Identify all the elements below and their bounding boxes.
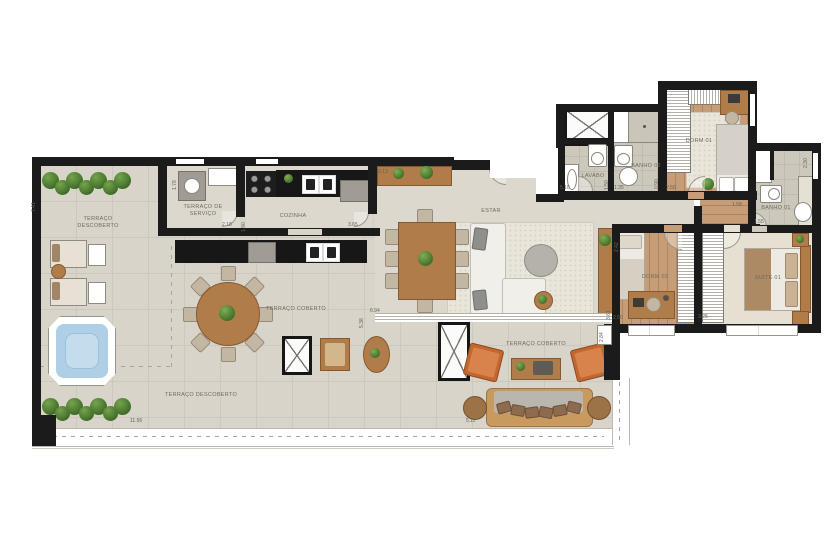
suite-plant: [796, 235, 804, 243]
dim-console-height: 2.42: [614, 242, 620, 252]
pillar-box-1: [282, 336, 312, 375]
dim-lavabo-height: 1.50: [604, 180, 610, 190]
round-side-table: [51, 264, 66, 279]
dim-banho02-width: 1.35: [614, 185, 624, 191]
dim-dorm01-width: 2.50: [666, 185, 676, 191]
banho01-shower-divider: [770, 147, 774, 180]
door-gap-banho01: [752, 226, 767, 232]
banho01-toilet: [760, 185, 782, 203]
dim-estar-height: 5.38: [359, 318, 365, 328]
dim-dorm02-height: 3.61: [606, 310, 612, 320]
wall-banho01-top: [748, 143, 820, 151]
dim-suite-width: 3.25: [698, 314, 708, 320]
chair: [221, 347, 236, 362]
sideboard: [377, 166, 452, 186]
room-label-terraco-coberto-right: TERRAÇO COBERTO: [490, 341, 582, 348]
dorm01-bed: [716, 124, 751, 195]
sun-lounger-2: [50, 278, 87, 306]
dim-terrace-bottom-width: 11.56: [130, 418, 142, 424]
terrace-edge-dashes: [44, 436, 604, 437]
room-label-terraco-coberto-left: TERRAÇO COBERTO: [250, 306, 342, 313]
door-gap-dorm02: [664, 225, 682, 232]
room-label-terraco-descoberto-bottom: TERRAÇO DESCOBERTO: [155, 392, 247, 399]
room-label-dorm01: DORM 01: [682, 138, 716, 145]
chair: [221, 266, 236, 281]
dim-lavabo-width: 5.10: [560, 185, 570, 191]
covered-boundary-v: [171, 243, 172, 367]
wall-hall-left: [694, 206, 702, 226]
kitchen-sink-left: [302, 175, 319, 194]
room-label-terraco-descoberto-top: TERRAÇO DESCOBERTO: [62, 216, 134, 230]
door-gap-suite: [724, 225, 740, 232]
dim-estar-width: 6.94: [370, 308, 380, 314]
window-top-2: [256, 159, 278, 164]
dim-dorm02-width: 2.50: [613, 315, 623, 321]
dorm02-lamp: [663, 295, 669, 301]
bush: [114, 172, 131, 189]
coffee-table-plant: [516, 362, 525, 371]
side-table-plant: [538, 295, 547, 304]
pouf-1: [463, 396, 487, 420]
room-label-banho01: BANHO 01: [756, 205, 796, 212]
bbq-sink-right: [323, 243, 340, 262]
bbq-sink-left: [306, 243, 323, 262]
ottoman: [524, 244, 558, 277]
kitchen-sink-right: [319, 175, 336, 194]
dim-sideboard-width: 3.13: [378, 169, 388, 175]
terrace-edge-right-dashes: [619, 382, 620, 440]
entry-notch: [490, 148, 538, 178]
ac-ledge-1: [628, 325, 675, 336]
dorm01-desk-chair: [725, 111, 739, 125]
wall-servico-divider: [236, 165, 245, 217]
dim-dorm01-closet-depth: 0.90: [654, 179, 660, 189]
table-plant: [219, 305, 235, 321]
counter-plant: [284, 174, 293, 183]
dining-table-plant: [418, 251, 433, 266]
wall-entry-top: [452, 160, 492, 170]
room-label-suite01: SUÍTE 01: [750, 275, 786, 282]
wall-dorm01-top: [658, 81, 757, 90]
sliding-door-estar: [375, 313, 612, 322]
sofa-pillow: [524, 406, 539, 419]
dorm02-pillow: [618, 235, 642, 249]
room-label-terraco-servico: TERRAÇO DE SERVIÇO: [172, 204, 234, 218]
door-gap-dorm01: [688, 192, 704, 199]
room-label-estar: ESTAR: [476, 208, 506, 215]
wall-banho01-left: [748, 149, 756, 229]
laundry-basin: [184, 178, 200, 194]
wall-shaft-bottom: [558, 138, 612, 144]
sideboard-plant-2: [420, 166, 433, 179]
terrace-edge-line: [32, 448, 614, 449]
dorm01-closet-top: [688, 89, 724, 105]
wall-estar-right: [612, 224, 620, 326]
dim-sofa-width: 5.11: [466, 418, 475, 424]
wall-bath-bottom: [556, 191, 757, 200]
suite-headboard: [800, 245, 811, 313]
sofa-pillow: [510, 404, 526, 417]
wall-servico-left: [158, 165, 167, 236]
side-table-2: [88, 282, 106, 304]
wall-dorm02-top: [613, 224, 698, 233]
dim-hall-width: 1.58: [732, 202, 742, 208]
door-gap-cozinha: [288, 229, 322, 235]
hedge-top: [46, 172, 156, 206]
sofa-cushion: [472, 289, 488, 310]
dim-terrace-notch-height: 2.84: [599, 332, 605, 342]
window-banho01: [813, 153, 818, 179]
dim-cozinha-depth: 1.90: [241, 222, 247, 232]
suite-pillow: [785, 281, 798, 307]
dorm02-laptop: [633, 298, 644, 307]
oval-table-plant: [370, 348, 380, 358]
bbq-grill: [248, 242, 276, 263]
wall-left: [32, 157, 41, 419]
wall-shaft-top: [556, 104, 614, 112]
room-label-dorm02: DORM 02: [638, 274, 672, 281]
bush: [114, 398, 131, 415]
wood-armchair: [320, 338, 350, 371]
dorm01-pillow: [719, 177, 734, 192]
terrace-edge-right: [612, 378, 630, 445]
terrace-edge-bottom: [32, 428, 614, 447]
dim-terrace-left-height: 7.41: [31, 202, 37, 212]
entry-notch-side: [536, 148, 558, 194]
wall-servico-bottom: [158, 228, 242, 236]
room-label-cozinha: COZINHA: [272, 213, 314, 220]
wall-banho02-top: [612, 104, 664, 112]
dim-banho01-height: 2.30: [803, 158, 809, 168]
dorm01-pillow: [734, 177, 749, 192]
window-top-1: [176, 159, 204, 164]
wall-suite-left: [694, 224, 702, 326]
hot-tub: [48, 316, 116, 386]
banho01-sink: [794, 202, 812, 222]
coffee-table-tray: [533, 361, 553, 375]
lounger-pillow: [52, 244, 60, 262]
dim-cozinha-width: 3.65: [348, 222, 358, 228]
banho02-shower-glass: [613, 111, 629, 143]
banho02-shower: [628, 111, 661, 143]
side-table-1: [88, 244, 106, 266]
ac-ledge-2: [726, 325, 798, 336]
wall-dorm01-left: [658, 81, 667, 193]
wall-cozinha-estar: [368, 160, 377, 214]
suite-closet: [702, 228, 724, 323]
lounger-pillow: [52, 282, 60, 300]
hot-tub-seat: [65, 333, 99, 369]
dim-banho01-width: 1.55: [754, 219, 764, 225]
dorm01-laptop: [728, 94, 740, 103]
armchair-cushion: [325, 343, 345, 366]
cooktop: [246, 171, 276, 197]
pouf-2: [587, 396, 611, 420]
console-plant: [599, 234, 611, 246]
sideboard-plant-1: [393, 168, 404, 179]
dim-servico-width: 2.18: [222, 222, 232, 228]
dorm01-blanket: [717, 125, 750, 175]
lavabo-toilet: [588, 144, 607, 167]
suite-nightstand-2: [792, 311, 809, 325]
dim-servico-depth: 1.78: [172, 180, 178, 190]
room-label-banho02: BANHO 02: [626, 163, 666, 170]
window-dorm01: [750, 94, 755, 126]
estar-passage-floor: [612, 200, 694, 224]
floor-plan: TERRAÇO DESCOBERTO TERRAÇO DE SERVIÇO CO…: [0, 0, 838, 554]
dorm02-desk-chair: [646, 297, 661, 312]
fridge: [340, 180, 370, 202]
suite-pillow: [785, 253, 798, 279]
wall-corner-bl: [32, 415, 56, 446]
